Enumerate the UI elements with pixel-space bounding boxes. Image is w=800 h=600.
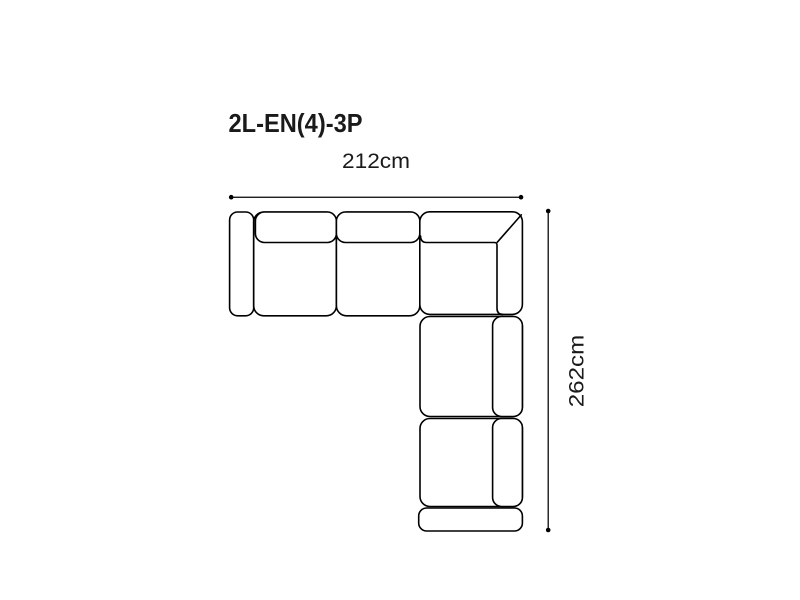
svg-text:262cm: 262cm — [565, 335, 589, 408]
svg-text:212cm: 212cm — [342, 149, 410, 173]
svg-text:2L-EN(4)-3P: 2L-EN(4)-3P — [229, 108, 363, 138]
